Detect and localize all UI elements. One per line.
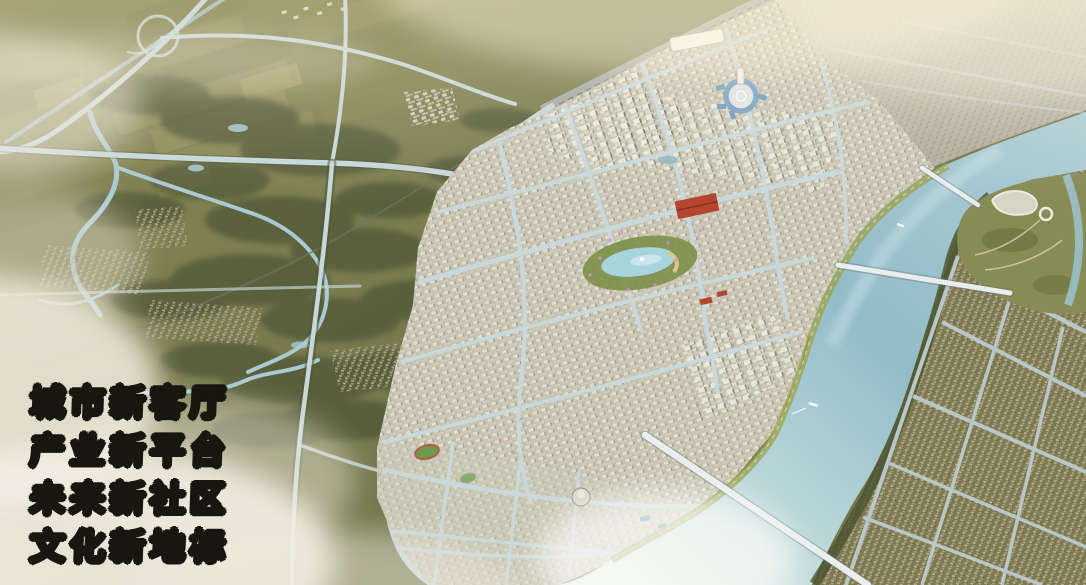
slogan-line-4: 文化新地标	[29, 524, 231, 572]
aerial-city-rendering: 城市新客厅 产业新平台 未来新社区 文化新地标	[0, 0, 1086, 585]
slogan-line-2: 产业新平台	[29, 428, 231, 476]
slogan-overlay: 城市新客厅 产业新平台 未来新社区 文化新地标	[30, 380, 230, 572]
slogan-line-1: 城市新客厅	[29, 380, 231, 428]
slogan-line-3: 未来新社区	[29, 476, 231, 524]
